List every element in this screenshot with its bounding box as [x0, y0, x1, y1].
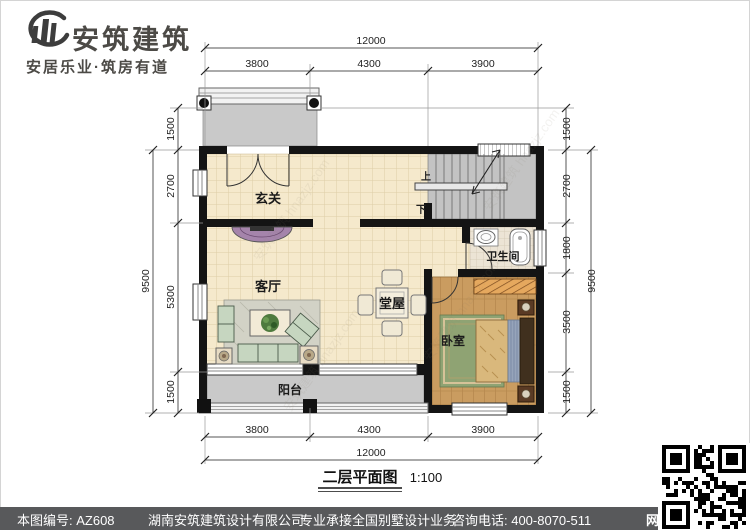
dim-top-seg2: 4300: [357, 58, 381, 70]
dim-left-seg4: 1500: [165, 380, 177, 404]
company-name: 湖南安筑建筑设计有限公司: [148, 510, 304, 529]
sink: [474, 229, 498, 246]
bath-right-window: [534, 230, 546, 266]
floor-plan-page: 上 下: [0, 0, 750, 530]
drawing-scale: 1:100: [410, 470, 443, 485]
room-label-bath: 卫生间: [487, 249, 520, 263]
drawing-number: 本图编号: AZ608: [17, 510, 115, 529]
phone-text: 咨询电话: 400-8070-511: [452, 510, 591, 529]
dim-left-total: 9500: [140, 269, 152, 293]
brand-tagline: 安居乐业·筑房有道: [26, 56, 169, 77]
dim-right-seg4: 3500: [561, 310, 573, 334]
qr-pattern: [662, 445, 746, 529]
dim-right-total: 9500: [586, 269, 598, 293]
balcony-window-right: [319, 364, 417, 375]
room-label-hall: 堂屋: [379, 296, 405, 311]
living-left-window: [193, 284, 207, 320]
dim-right-seg5: 1500: [561, 380, 573, 404]
dim-left-seg1: 1500: [165, 117, 177, 141]
room-label-balcony: 阳台: [278, 382, 302, 397]
qr-code: [658, 443, 750, 530]
bedroom-bottom-window: [452, 403, 507, 415]
brand-building-icon: [20, 10, 70, 52]
dim-top-seg3: 3900: [471, 58, 495, 70]
dim-bottom-seg2: 4300: [357, 424, 381, 436]
dim-right-seg3: 1800: [561, 236, 573, 260]
stairs-up-label: 上: [421, 170, 431, 183]
dim-top-total: 12000: [356, 35, 385, 47]
brand-logo: 安筑建筑 安居乐业·筑房有道: [20, 10, 280, 90]
terrace: [197, 88, 321, 146]
coffee-table: [250, 310, 290, 336]
bed: [476, 318, 534, 384]
dim-left-seg3: 5300: [165, 285, 177, 309]
dim-bottom-total: 12000: [356, 447, 385, 459]
dim-left-seg2: 2700: [165, 174, 177, 198]
wardrobe: [474, 279, 536, 294]
dim-bottom-seg1: 3800: [245, 424, 269, 436]
balcony-window-left: [207, 364, 303, 375]
service-text: 专业承接全国别墅设计业务: [300, 510, 456, 529]
room-label-entry: 玄关: [255, 191, 281, 206]
dim-right-seg1: 1500: [561, 117, 573, 141]
dim-right-seg2: 2700: [561, 174, 573, 198]
room-label-bedroom: 卧室: [441, 333, 465, 348]
room-label-living: 客厅: [255, 279, 281, 294]
stairs-down-label: 下: [416, 204, 426, 216]
entry-left-window: [193, 170, 207, 196]
drawing-title: 二层平面图: [322, 469, 397, 486]
dim-bottom-seg3: 3900: [471, 424, 495, 436]
brand-title: 安筑建筑: [72, 18, 192, 57]
drawing-title-block: 二层平面图 1:100: [318, 469, 442, 492]
footer-bar: 本图编号: AZ608 湖南安筑建筑设计有限公司 专业承接全国别墅设计业务 咨询…: [0, 507, 750, 530]
